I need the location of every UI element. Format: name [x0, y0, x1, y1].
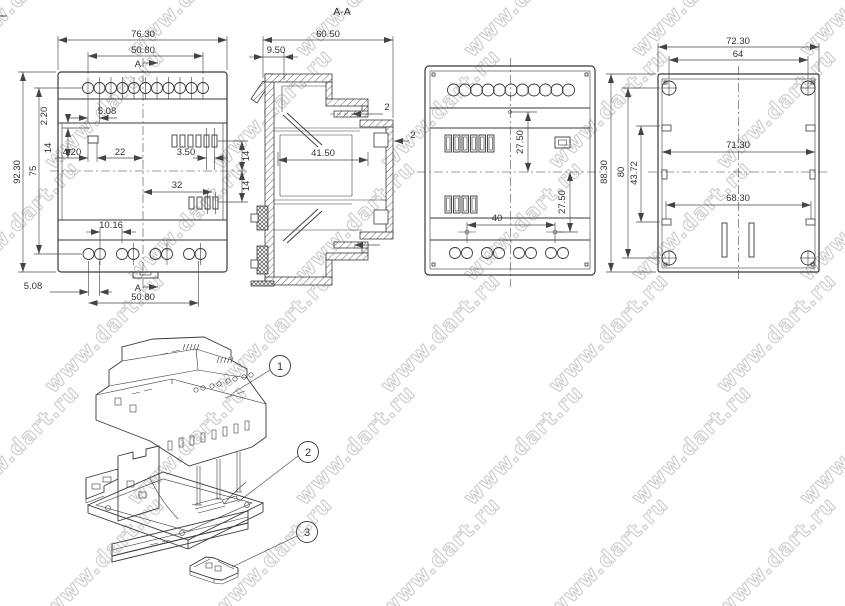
dim-inside-hook-height: 43.72 [629, 161, 640, 185]
dim-front-offset-small: 2.20 [39, 107, 50, 126]
section-label-bottom: A [135, 283, 142, 294]
back-view: 27.50 27.50 40 [417, 58, 601, 287]
exploded-view: 1 2 3 [86, 337, 319, 584]
dim-front-height-total: 92.30 [12, 160, 23, 184]
front-dimensions: 76.30 50.80 A 5.08 92.30 75 2.20 [12, 29, 252, 307]
section-label-top: A [135, 59, 142, 70]
balloon-2: 2 [238, 442, 319, 503]
front-terminal-holes-top [83, 77, 209, 99]
section-internal-lines [274, 86, 388, 245]
din-rail [112, 511, 248, 562]
inside-dimensions: 72.30 64 71.30 68.30 88.30 80 43.72 [599, 36, 819, 272]
dim-back-lower-offset: 27.50 [557, 190, 568, 214]
dim-front-slot-width: 4.20 [63, 147, 82, 158]
terminal-screws [194, 373, 253, 392]
drawing-sheet: www.dart.ruwww.dart.ruwww.dart.ruwww.dar… [0, 0, 845, 606]
back-outline [425, 66, 595, 275]
balloon-3-label: 3 [304, 527, 310, 539]
dim-inside-height-total: 88.30 [599, 160, 610, 184]
back-holes-bottom [450, 248, 569, 259]
dim-front-pair-pitch-bottom: 5.08 [24, 281, 43, 292]
balloon-1-label: 1 [277, 361, 283, 373]
balloon-1: 1 [233, 356, 291, 394]
front-outline [58, 72, 227, 278]
dim-front-right-lower-span: 14 [241, 181, 252, 192]
dim-inside-inner-width: 71.30 [726, 140, 750, 151]
dim-section-depth-total: 60.50 [316, 29, 340, 40]
dim-front-hole-span-top: 50.80 [131, 45, 155, 56]
front-terminal-holes-bottom [83, 243, 206, 265]
section-title: A-A [333, 6, 351, 18]
dim-inside-screw-height: 80 [616, 167, 627, 178]
dim-front-width-total: 76.30 [131, 29, 155, 40]
dim-inside-hook-span: 68.30 [726, 193, 750, 204]
inside-view: 72.30 64 71.30 68.30 88.30 80 43.72 [599, 36, 828, 282]
section-walls [251, 74, 393, 285]
dim-section-cavity-width: 41.50 [311, 148, 335, 159]
dim-section-front-step: 9.50 [267, 45, 286, 56]
dim-back-mount-hole-span: 40 [492, 213, 503, 224]
dim-front-right-upper-span: 14 [241, 151, 252, 162]
din-clip-part [190, 557, 238, 584]
terminal-slots [168, 421, 249, 450]
balloon-2-label: 2 [305, 447, 311, 459]
face-dashes [132, 350, 245, 398]
back-dimensions: 27.50 27.50 40 [458, 111, 578, 244]
dim-inside-screw-span: 64 [733, 49, 744, 60]
dim-inside-width-total: 72.30 [726, 36, 750, 47]
front-view: 76.30 50.80 A 5.08 92.30 75 2.20 [12, 29, 252, 307]
balloon-3: 3 [232, 522, 318, 568]
back-slots-lower [445, 196, 477, 213]
base-part [86, 446, 263, 549]
dim-front-hole-rows-span: 75 [28, 166, 39, 177]
dim-front-left-span: 14 [43, 143, 54, 154]
dim-back-upper-offset: 27.50 [515, 130, 526, 154]
dim-front-slot-pitch: 3.50 [177, 147, 196, 158]
section-view: A-A [249, 6, 416, 286]
guide-pins [195, 452, 242, 505]
dim-front-hole-pitch-bottom: 10.16 [99, 220, 123, 231]
enclosure-top-part [96, 337, 266, 505]
technical-drawing: 76.30 50.80 A 5.08 92.30 75 2.20 [0, 0, 845, 606]
back-slots-upper [445, 135, 570, 152]
back-vent-holes-top [448, 84, 575, 96]
dim-front-lower-center-dist: 32 [172, 180, 183, 191]
dim-section-wall-thickness: 2 [410, 130, 415, 141]
inside-slot-right [749, 223, 754, 257]
top-vents [183, 344, 233, 363]
dim-front-center-dist: 22 [115, 147, 126, 158]
dim-section-rib-thickness: 2 [384, 102, 389, 113]
dim-front-hole-pitch-top: 5.08 [98, 106, 117, 117]
inside-slot-left [722, 223, 727, 257]
